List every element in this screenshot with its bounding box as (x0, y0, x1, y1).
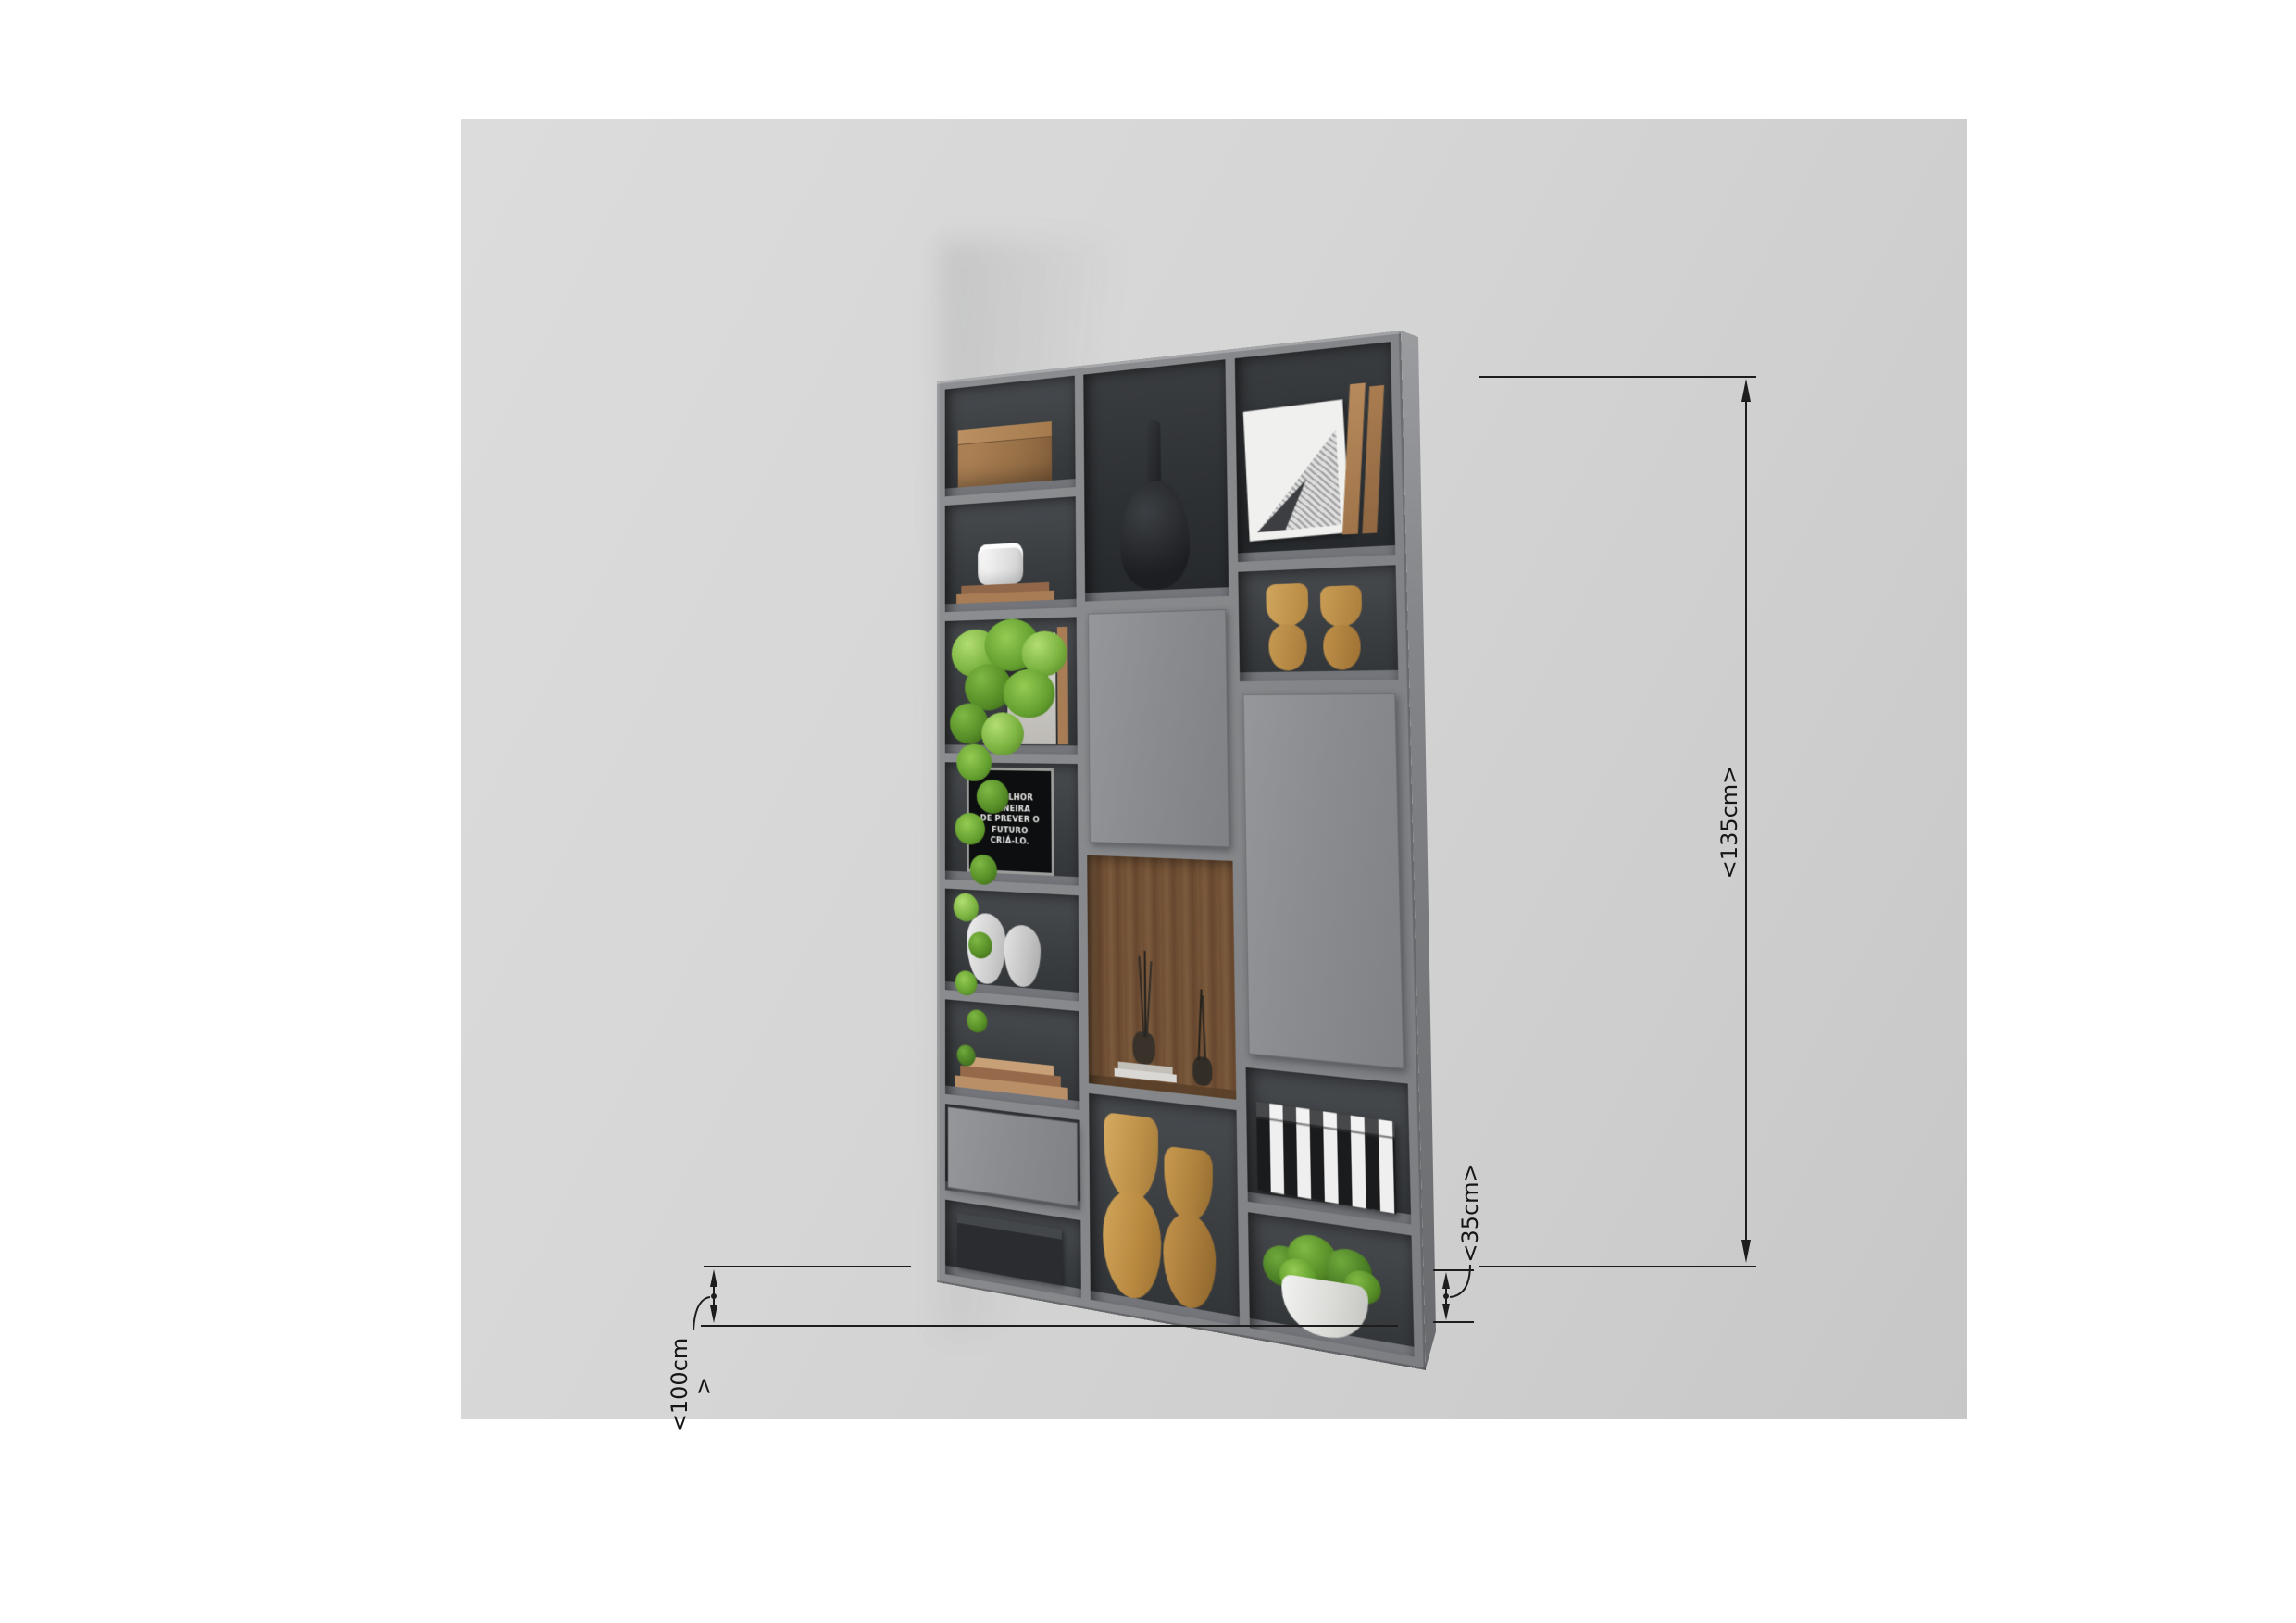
leader-arc (693, 1297, 710, 1330)
dimension-annotations: <135cm> <35cm> <100cm > (0, 0, 2296, 1623)
arrow-down-icon (1442, 1304, 1450, 1320)
height-dimension-label: <135cm> (1716, 766, 1742, 880)
width-dimension-label-arrow: > (691, 1377, 717, 1395)
page: { "dimensions": { "height": "<135cm>", "… (0, 0, 2296, 1623)
arrow-up-icon (1741, 379, 1751, 402)
arrow-up-icon (1442, 1272, 1450, 1289)
leader-dot (711, 1293, 717, 1299)
depth-dimension-label: <35cm> (1457, 1163, 1483, 1262)
arrow-down-icon (1741, 1240, 1751, 1263)
arrow-up-icon (710, 1269, 717, 1287)
arrow-down-icon (710, 1305, 717, 1323)
leader-dot (1443, 1293, 1449, 1299)
width-dimension-label: <100cm (667, 1338, 693, 1433)
